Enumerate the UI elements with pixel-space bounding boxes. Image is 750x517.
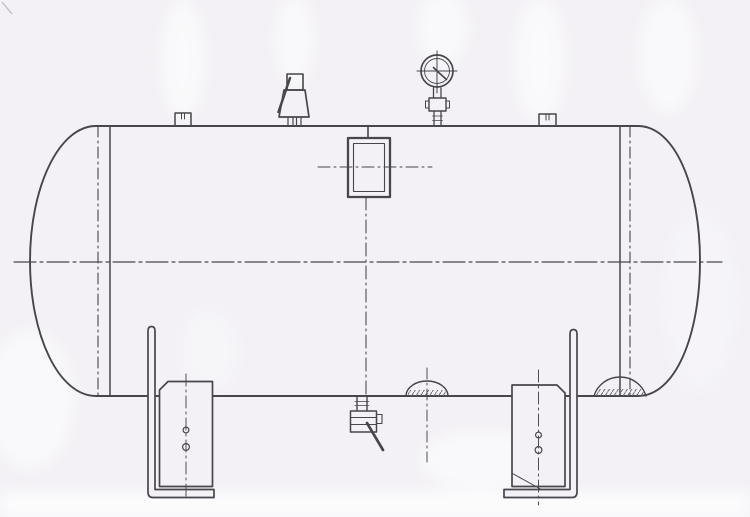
scanned-drawing-page: Horizontal pressure vessel - side elevat… [0,0,750,517]
scan-ghost [514,0,566,122]
boss-large-hatch [596,389,644,396]
scan-ghost [161,0,205,120]
scan-bottom-strip [0,492,750,517]
pressure-vessel-drawing: Horizontal pressure vessel - side elevat… [0,0,750,517]
scan-ghost [638,0,698,113]
paper-background [0,0,750,517]
scan-ghost [182,310,238,390]
